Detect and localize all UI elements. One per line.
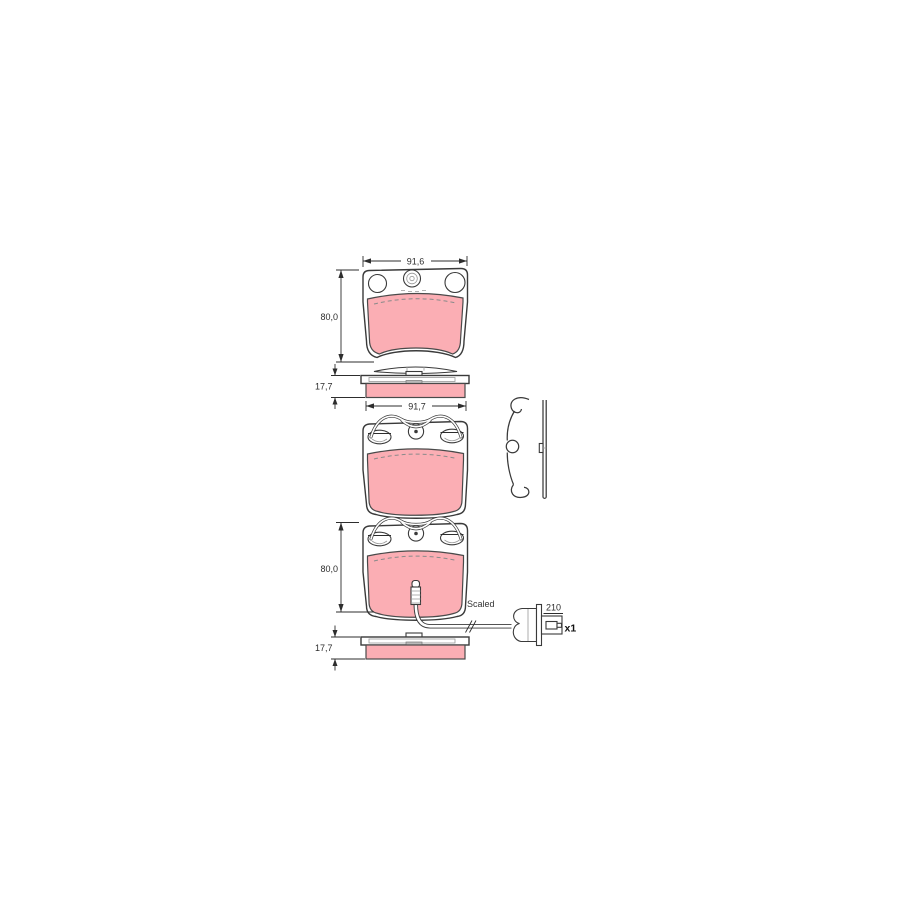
quantity-label: x1 — [565, 623, 577, 635]
arrowhead-left — [363, 258, 371, 263]
pad-front-view-top — [363, 269, 468, 358]
dimension-thickness-bottom: 17,7 — [315, 626, 365, 671]
arrowhead-down — [338, 354, 343, 362]
connector-pin — [546, 622, 557, 630]
brake-pad-technical-drawing: 91,6 80,0 17,7 91,7 — [0, 0, 915, 915]
shim-plate-side-view — [539, 400, 546, 498]
pad-edge-view-top — [361, 372, 469, 398]
wire-length-label: 210 — [546, 603, 561, 613]
dimension-width-top: 91,6 — [363, 256, 467, 267]
sensor-body — [411, 587, 421, 605]
arrowhead-up — [338, 270, 343, 278]
spring-clip-side-view — [506, 398, 529, 498]
pad-edge-view-bottom — [361, 633, 469, 659]
friction-edge — [366, 645, 465, 659]
drawing-canvas: 91,6 80,0 17,7 91,7 — [0, 0, 915, 915]
mounting-hole-left — [369, 275, 387, 293]
mounting-hole-right — [445, 273, 465, 293]
dim-label-width-middle: 91,7 — [408, 402, 426, 412]
dim-label-thickness-top: 17,7 — [315, 382, 333, 392]
scale-note: Scaled — [467, 599, 495, 609]
dim-label-thickness-bottom: 17,7 — [315, 643, 333, 653]
dimension-width-middle: 91,7 — [366, 401, 466, 412]
dim-label-height-bottom: 80,0 — [320, 564, 338, 574]
dim-label-height-top: 80,0 — [320, 312, 338, 322]
dimension-thickness-top: 17,7 — [315, 364, 365, 409]
arrowhead-right — [459, 258, 467, 263]
friction-material — [368, 449, 464, 515]
pad-front-view-middle — [363, 416, 468, 518]
friction-edge — [366, 384, 465, 398]
dim-label-width-top: 91,6 — [407, 257, 425, 267]
connector-grommet — [513, 609, 536, 642]
connector-pin-tip — [557, 623, 562, 627]
shim-tab — [539, 444, 543, 453]
sensor-connector: 210 x1 — [513, 603, 576, 646]
clip-loop — [506, 440, 518, 452]
connector-flange — [537, 605, 542, 646]
